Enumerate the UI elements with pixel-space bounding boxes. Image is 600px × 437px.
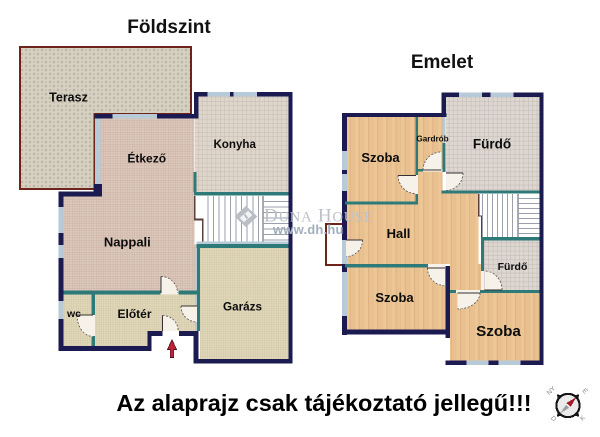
svg-text:Szoba: Szoba bbox=[361, 150, 400, 165]
svg-text:Nappali: Nappali bbox=[104, 235, 151, 250]
svg-text:Konyha: Konyha bbox=[213, 138, 256, 151]
svg-text:www.dh.hu: www.dh.hu bbox=[272, 222, 344, 237]
svg-text:Az alaprajz csak tájékoztató j: Az alaprajz csak tájékoztató jellegű!!! bbox=[116, 390, 531, 416]
svg-text:Földszint: Földszint bbox=[127, 17, 211, 38]
svg-text:Gardrób: Gardrób bbox=[416, 135, 448, 144]
svg-text:Garázs: Garázs bbox=[223, 301, 262, 314]
svg-text:Szoba: Szoba bbox=[476, 323, 521, 340]
svg-text:Étkező: Étkező bbox=[127, 151, 166, 166]
svg-text:Emelet: Emelet bbox=[411, 52, 474, 73]
svg-text:Terasz: Terasz bbox=[49, 91, 88, 105]
svg-text:Szoba: Szoba bbox=[375, 290, 414, 305]
svg-text:Előtér: Előtér bbox=[117, 307, 151, 321]
svg-text:wc: wc bbox=[66, 308, 81, 320]
svg-text:Fürdő: Fürdő bbox=[498, 261, 528, 273]
svg-text:Fürdő: Fürdő bbox=[473, 137, 511, 152]
svg-text:Hall: Hall bbox=[387, 226, 411, 241]
